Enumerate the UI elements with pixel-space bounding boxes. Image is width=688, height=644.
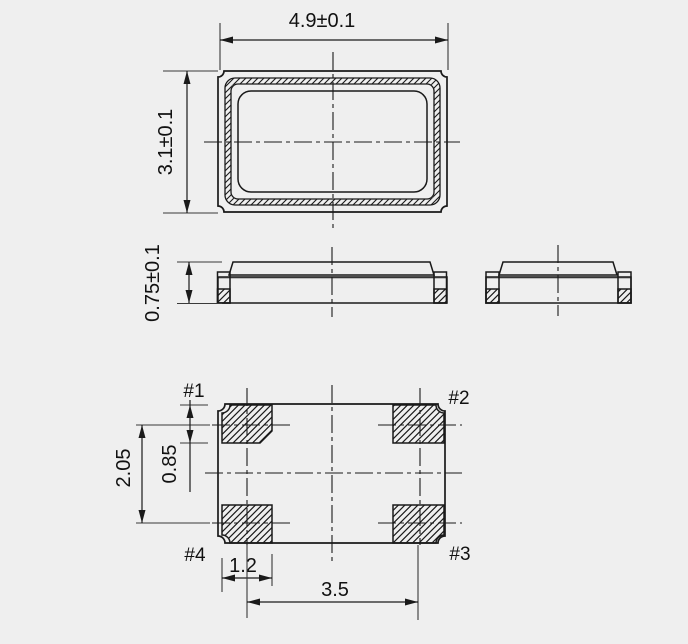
dimension-thickness: 0.75±0.1 — [142, 244, 222, 322]
package-dimension-drawing: 4.9±0.1 3.1±0.1 0.75±0 — [0, 0, 688, 644]
arrowhead-down — [184, 200, 191, 213]
dimension-horizontal-pitch-label: 3.5 — [321, 579, 349, 601]
arrowhead-left — [220, 37, 233, 44]
dimension-height-label: 3.1±0.1 — [155, 109, 177, 176]
drawing-svg: 4.9±0.1 3.1±0.1 0.75±0 — [0, 0, 688, 644]
top-view — [204, 52, 460, 232]
arrowhead-up — [187, 405, 194, 418]
dimension-width: 4.9±0.1 — [220, 10, 448, 70]
arrowhead-up — [184, 71, 191, 84]
arrowhead-right — [259, 575, 272, 582]
arrowhead-down — [139, 510, 146, 523]
pad-3 — [393, 505, 444, 543]
dimension-thickness-label: 0.75±0.1 — [142, 244, 164, 322]
side-view-front — [218, 247, 448, 317]
pad-3-label: #3 — [449, 544, 470, 565]
dimension-vertical-pitch-label: 2.05 — [113, 449, 135, 488]
pad-1-label: #1 — [183, 381, 204, 402]
terminal-metal-front-right — [434, 289, 447, 303]
arrowhead-up — [139, 425, 146, 438]
terminal-metal-front-left — [218, 289, 231, 303]
arrowhead-left — [247, 599, 260, 606]
pad-2 — [393, 405, 444, 443]
dimension-pad-width-label: 1.2 — [229, 555, 257, 577]
side-view-end — [486, 245, 631, 316]
arrowhead-right — [405, 599, 418, 606]
terminal-metal-end-left — [486, 289, 499, 303]
dimension-pad-height-label: 0.85 — [159, 445, 181, 484]
arrowhead-down — [187, 430, 194, 443]
arrowhead-up — [186, 262, 193, 275]
arrowhead-right — [435, 37, 448, 44]
arrowhead-down — [186, 290, 193, 303]
bottom-view: #1 #2 #3 #4 — [183, 381, 470, 566]
terminal-metal-end-right — [618, 289, 631, 303]
dimension-pad-height: 0.85 — [159, 400, 208, 492]
dimension-width-label: 4.9±0.1 — [289, 10, 356, 32]
dimension-horizontal-pitch: 3.5 — [247, 545, 418, 620]
pad-2-label: #2 — [448, 388, 469, 409]
pad-4-label: #4 — [184, 545, 206, 566]
